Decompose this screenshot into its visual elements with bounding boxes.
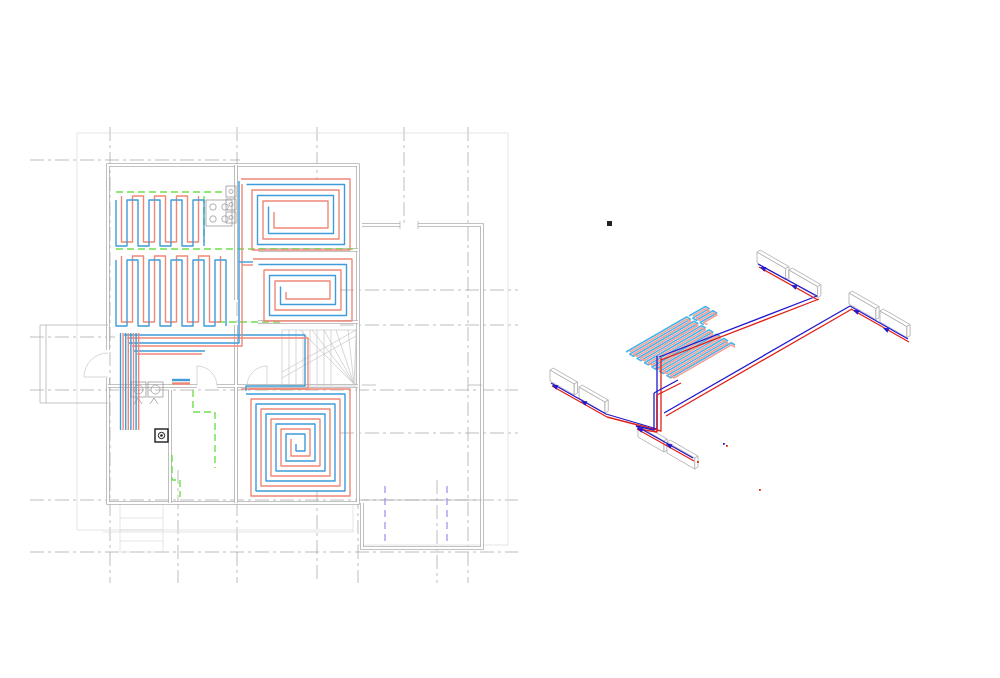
pipe-endpoint <box>723 443 725 445</box>
radiator-3d <box>818 285 821 298</box>
floor-box-symbol <box>155 429 168 442</box>
pipe-endpoint <box>759 489 761 491</box>
radiator-3d <box>907 325 910 338</box>
spiral-room-mid <box>259 265 347 316</box>
radiator-3d <box>786 267 789 280</box>
radiator-3d <box>605 400 608 413</box>
spiral-room-mid <box>253 259 352 321</box>
axon-pipe-run <box>637 429 694 461</box>
serpentine-field-1 <box>116 200 204 246</box>
pipe-endpoint <box>697 461 699 463</box>
opening-markers <box>385 486 447 546</box>
spiral-room-top <box>247 185 345 245</box>
underfloor-heating-circuits <box>116 179 352 496</box>
drawing-canvas <box>0 0 1000 678</box>
floor-plan-view <box>30 127 518 583</box>
axon-pipe-run <box>636 426 693 458</box>
junction-marker <box>607 221 612 226</box>
axon-pipe-run <box>606 356 657 429</box>
axon-pipe-run <box>636 393 654 430</box>
piping-isometric <box>550 221 910 491</box>
spiral-room-bottom <box>241 389 350 496</box>
radiator-3d <box>574 382 577 395</box>
axonometric-view <box>550 221 910 491</box>
radiator-3d <box>876 307 879 320</box>
pipe-endpoint <box>726 445 728 447</box>
cad-drawing <box>0 0 1000 678</box>
axon-pipe-run <box>607 358 661 431</box>
